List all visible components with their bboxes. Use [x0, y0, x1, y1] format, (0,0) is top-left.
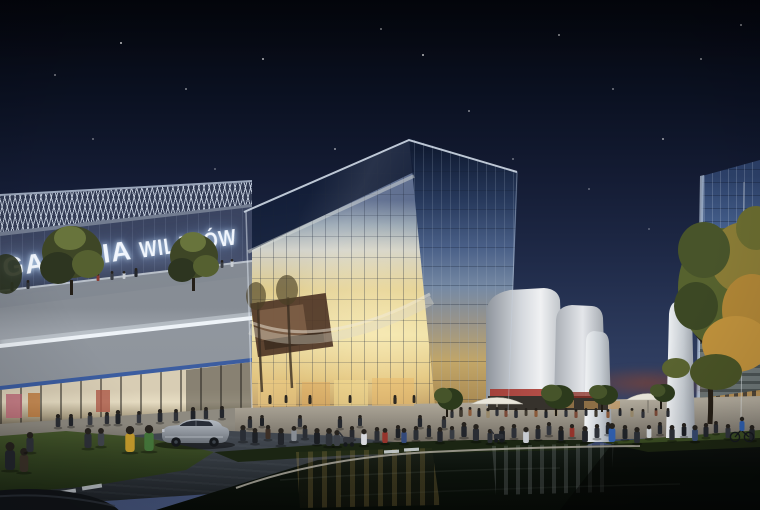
- stars: [0, 0, 2, 2]
- rendering-canvas: GALERIA WILANÓW: [0, 0, 760, 510]
- sunset-horizon-glow: [570, 366, 725, 400]
- shop-poster: [96, 390, 110, 412]
- shop-poster: [28, 393, 40, 417]
- shop-poster: [6, 394, 22, 418]
